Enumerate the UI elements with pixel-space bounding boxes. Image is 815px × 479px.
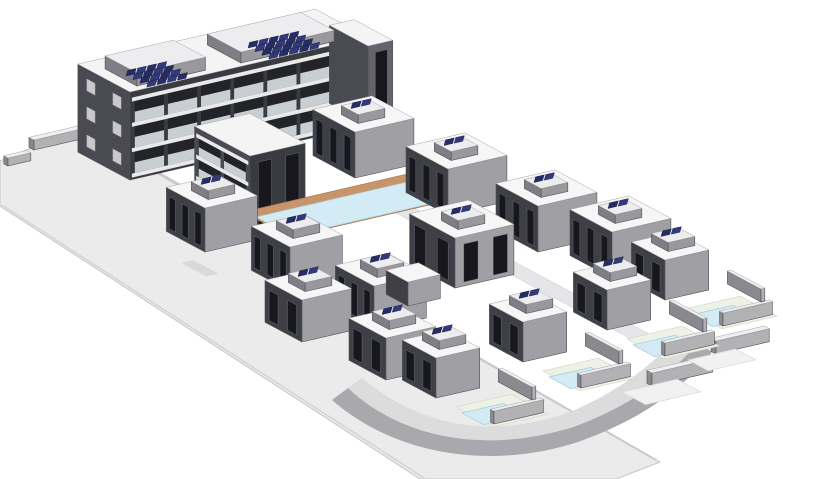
- site-3d-view: [0, 0, 815, 479]
- terrace-wall-2: [711, 326, 769, 354]
- render-viewport: [0, 0, 815, 479]
- villa-4: [631, 227, 777, 329]
- townhouse-r1: [313, 96, 414, 178]
